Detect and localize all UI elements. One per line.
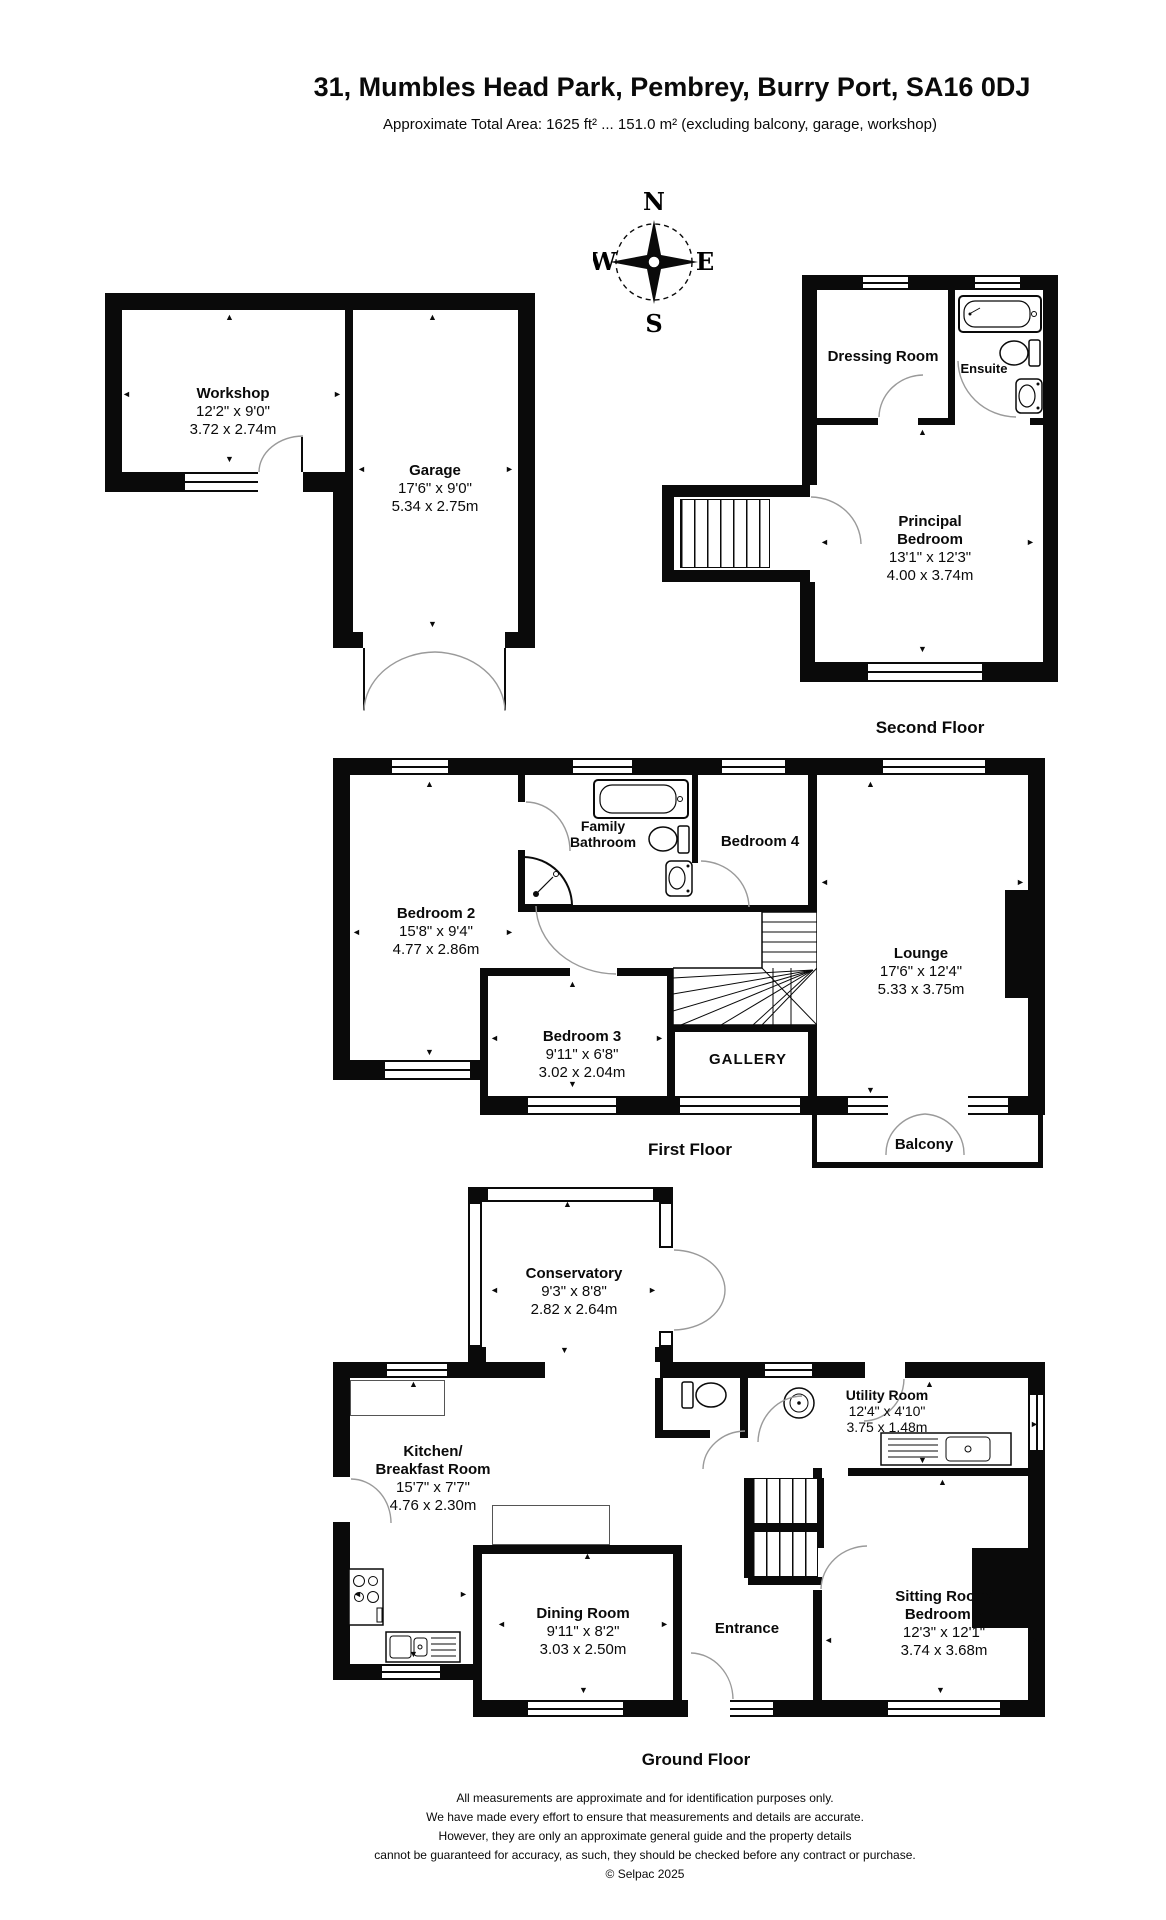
dimension-arrow-down-icon: ▼ — [866, 1086, 875, 1095]
room-label-bedroom-2: Bedroom 2 15'8" x 9'4" 4.77 x 2.86m — [393, 905, 480, 959]
dimension-arrow-up-icon: ▲ — [938, 1478, 947, 1487]
door-arc-icon — [820, 1545, 868, 1590]
wall — [623, 1700, 688, 1717]
wall — [473, 1545, 482, 1717]
wall — [808, 1096, 848, 1115]
disclaimer-line: However, they are only an approximate ge… — [374, 1827, 915, 1846]
wall — [692, 775, 698, 863]
wall — [105, 293, 535, 310]
wall — [473, 1700, 528, 1717]
room-label-dressing-room: Dressing Room — [828, 348, 939, 366]
wall — [333, 758, 350, 1080]
room-label-balcony: Balcony — [895, 1136, 953, 1154]
dimension-arrow-left-icon: ◄ — [357, 465, 366, 474]
wall — [480, 968, 488, 1096]
window — [528, 1096, 616, 1115]
dimension-arrow-left-icon: ◄ — [353, 1590, 362, 1599]
floor-label-second: Second Floor — [876, 718, 985, 738]
glazed-wall — [659, 1202, 673, 1248]
wall — [655, 1378, 663, 1438]
window — [765, 1362, 812, 1378]
toilet-icon — [680, 1380, 736, 1410]
disclaimer-line: We have made every effort to ensure that… — [374, 1808, 915, 1827]
window — [730, 1700, 773, 1717]
window — [387, 1362, 447, 1378]
wall — [333, 472, 353, 632]
wall — [468, 1187, 486, 1202]
wall — [1030, 418, 1043, 425]
dimension-arrow-left-icon: ◄ — [824, 1636, 833, 1645]
wall — [667, 1025, 817, 1032]
garage-doors-arc-icon — [363, 648, 506, 712]
dimension-arrow-down-icon: ▼ — [425, 1048, 434, 1057]
room-label-gallery: GALLERY — [709, 1051, 787, 1069]
dimension-arrow-right-icon: ► — [1030, 1420, 1039, 1429]
wall — [744, 1478, 752, 1578]
toilet-icon — [646, 824, 690, 855]
wall — [773, 1700, 888, 1717]
window — [722, 758, 785, 775]
balcony-wall — [1038, 1115, 1043, 1167]
wall — [655, 1347, 673, 1362]
window — [883, 758, 985, 775]
floor-label-ground: Ground Floor — [642, 1750, 751, 1770]
wall — [905, 1362, 1045, 1378]
dimension-arrow-right-icon: ► — [505, 465, 514, 474]
dimension-arrow-right-icon: ► — [459, 1590, 468, 1599]
dimension-arrow-right-icon: ► — [333, 390, 342, 399]
dimension-arrow-up-icon: ▲ — [428, 313, 437, 322]
dimension-arrow-up-icon: ▲ — [563, 1200, 572, 1209]
window — [392, 758, 448, 775]
door-arc-icon — [757, 1395, 803, 1443]
wall — [848, 1468, 1028, 1476]
window — [863, 275, 908, 290]
dimension-arrow-left-icon: ◄ — [820, 878, 829, 887]
wall — [918, 418, 955, 425]
wall — [802, 275, 817, 485]
dimension-arrow-right-icon: ► — [660, 1620, 669, 1629]
floorplan-sheet: 31, Mumbles Head Park, Pembrey, Burry Po… — [0, 0, 1166, 1920]
worktop — [350, 1380, 445, 1416]
total-area-subtitle: Approximate Total Area: 1625 ft² ... 151… — [383, 116, 937, 133]
wall — [473, 1545, 682, 1554]
utility-sink-icon — [880, 1432, 1012, 1466]
dimension-arrow-left-icon: ◄ — [352, 928, 361, 937]
balcony-wall — [812, 1115, 817, 1167]
dimension-arrow-left-icon: ◄ — [820, 538, 829, 547]
staircase — [752, 1478, 818, 1524]
floor-label-first: First Floor — [648, 1140, 732, 1160]
door-arc-icon — [702, 1430, 746, 1470]
breakfast-bar — [492, 1505, 610, 1545]
dimension-arrow-down-icon: ▼ — [918, 645, 927, 654]
wall — [1008, 1096, 1045, 1115]
dimension-arrow-down-icon: ▼ — [560, 1346, 569, 1355]
window — [528, 1700, 623, 1717]
door-arc-icon — [700, 860, 750, 908]
dimension-arrow-left-icon: ◄ — [122, 390, 131, 399]
room-label-ensuite: Ensuite — [961, 360, 1008, 378]
window — [848, 1096, 888, 1115]
wall — [345, 310, 353, 472]
dimension-arrow-up-icon: ▲ — [583, 1552, 592, 1561]
dimension-arrow-up-icon: ▲ — [568, 980, 577, 989]
wall — [1000, 1700, 1045, 1717]
disclaimer: All measurements are approximate and for… — [374, 1789, 915, 1884]
dimension-arrow-right-icon: ► — [1026, 538, 1035, 547]
wall — [948, 290, 955, 418]
wall — [660, 1362, 865, 1378]
window — [385, 1060, 470, 1080]
room-label-conservatory: Conservatory 9'3" x 8'8" 2.82 x 2.64m — [526, 1265, 623, 1319]
dimension-arrow-down-icon: ▼ — [579, 1686, 588, 1695]
window — [382, 1664, 440, 1680]
kitchen-sink-icon — [385, 1631, 461, 1663]
wall — [740, 1378, 748, 1438]
door-arc-icon — [878, 374, 924, 418]
compass-icon: N W E S — [593, 186, 715, 336]
dimension-arrow-up-icon: ▲ — [409, 1380, 418, 1389]
wall — [813, 1590, 822, 1700]
room-label-entrance: Entrance — [715, 1620, 779, 1638]
wall — [333, 1362, 350, 1477]
room-label-principal-bedroom: Principal Bedroom 13'1" x 12'3" 4.00 x 3… — [887, 513, 974, 585]
dimension-arrow-right-icon: ► — [1016, 878, 1025, 887]
door-arc-icon — [810, 495, 862, 545]
wall — [105, 472, 185, 492]
dimension-arrow-up-icon: ▲ — [866, 780, 875, 789]
disclaimer-line: © Selpac 2025 — [374, 1865, 915, 1884]
dimension-arrow-down-icon: ▼ — [918, 1456, 927, 1465]
wall — [505, 632, 535, 648]
compass-w: W — [593, 247, 618, 276]
room-label-family-bathroom: Family Bathroom — [570, 818, 636, 850]
wall — [802, 418, 878, 425]
window — [868, 662, 982, 682]
compass-n: N — [643, 187, 665, 216]
room-label-workshop: Workshop 12'2" x 9'0" 3.72 x 2.74m — [190, 385, 277, 439]
staircase — [680, 499, 770, 568]
wall — [752, 1524, 818, 1531]
window — [680, 1096, 800, 1115]
wall — [818, 1478, 824, 1548]
dimension-arrow-right-icon: ► — [505, 928, 514, 937]
dimension-arrow-down-icon: ▼ — [936, 1686, 945, 1695]
room-label-bedroom-3: Bedroom 3 9'11" x 6'8" 3.02 x 2.04m — [539, 1028, 626, 1082]
staircase — [752, 1531, 818, 1577]
disclaimer-line: cannot be guaranteed for accuracy, as su… — [374, 1846, 915, 1865]
wall — [333, 632, 363, 648]
wall — [748, 1577, 822, 1585]
wall — [662, 570, 810, 582]
wall — [105, 293, 122, 492]
room-label-sitting-room-bedroom-5: Sitting Room/ Bedroom 5 12'3" x 12'1" 3.… — [895, 1588, 993, 1660]
dimension-arrow-down-icon: ▼ — [225, 455, 234, 464]
wall — [468, 1347, 486, 1362]
glazed-wall — [659, 1331, 673, 1347]
dimension-arrow-right-icon: ► — [648, 1286, 657, 1295]
window — [968, 1096, 1008, 1115]
balcony-wall — [812, 1162, 1043, 1168]
window — [573, 758, 632, 775]
window — [888, 1700, 1000, 1717]
sink-icon — [1012, 378, 1043, 414]
room-label-bedroom-4: Bedroom 4 — [721, 833, 799, 851]
dimension-arrow-right-icon: ► — [655, 1034, 664, 1043]
door-arc-icon — [525, 800, 571, 852]
window — [185, 472, 258, 492]
dimension-arrow-right-icon: ► — [1030, 1636, 1039, 1645]
room-label-lounge: Lounge 17'6" x 12'4" 5.33 x 3.75m — [878, 945, 965, 999]
dimension-arrow-left-icon: ◄ — [490, 1286, 499, 1295]
conservatory-doors-arc-icon — [673, 1248, 727, 1332]
bath-icon — [593, 779, 689, 819]
door-arc-icon — [258, 435, 304, 473]
dimension-arrow-up-icon: ▲ — [425, 780, 434, 789]
wall — [655, 1187, 673, 1202]
room-label-dining-room: Dining Room 9'11" x 8'2" 3.03 x 2.50m — [536, 1605, 629, 1659]
dimension-arrow-left-icon: ◄ — [497, 1620, 506, 1629]
dimension-arrow-left-icon: ◄ — [490, 1034, 499, 1043]
compass-e: E — [696, 247, 714, 276]
wall — [518, 775, 525, 802]
wall — [662, 485, 674, 582]
room-label-utility-room: Utility Room 12'4" x 4'10" 3.75 x 1.48m — [846, 1387, 928, 1435]
shower-head-icon — [523, 856, 573, 906]
bath-icon — [958, 295, 1042, 333]
disclaimer-line: All measurements are approximate and for… — [374, 1789, 915, 1808]
wall — [518, 293, 535, 632]
wall — [1043, 275, 1058, 682]
door-arc-icon — [690, 1652, 734, 1700]
dimension-arrow-up-icon: ▲ — [918, 428, 927, 437]
staircase — [673, 912, 817, 1025]
window — [975, 275, 1020, 290]
dimension-arrow-down-icon: ▼ — [428, 620, 437, 629]
room-label-kitchen-breakfast-room: Kitchen/ Breakfast Room 15'7" x 7'7" 4.7… — [375, 1443, 490, 1515]
page-title: 31, Mumbles Head Park, Pembrey, Burry Po… — [314, 72, 1031, 103]
wall — [662, 485, 810, 497]
door-arc-icon — [535, 905, 617, 975]
dimension-arrow-down-icon: ▼ — [409, 1650, 418, 1659]
wall — [673, 1548, 682, 1700]
room-label-garage: Garage 17'6" x 9'0" 5.34 x 2.75m — [392, 462, 479, 516]
glazed-wall — [468, 1202, 482, 1347]
dimension-arrow-up-icon: ▲ — [225, 313, 234, 322]
sink-icon — [662, 860, 693, 897]
compass-s: S — [645, 309, 662, 336]
wall — [1028, 758, 1045, 1115]
